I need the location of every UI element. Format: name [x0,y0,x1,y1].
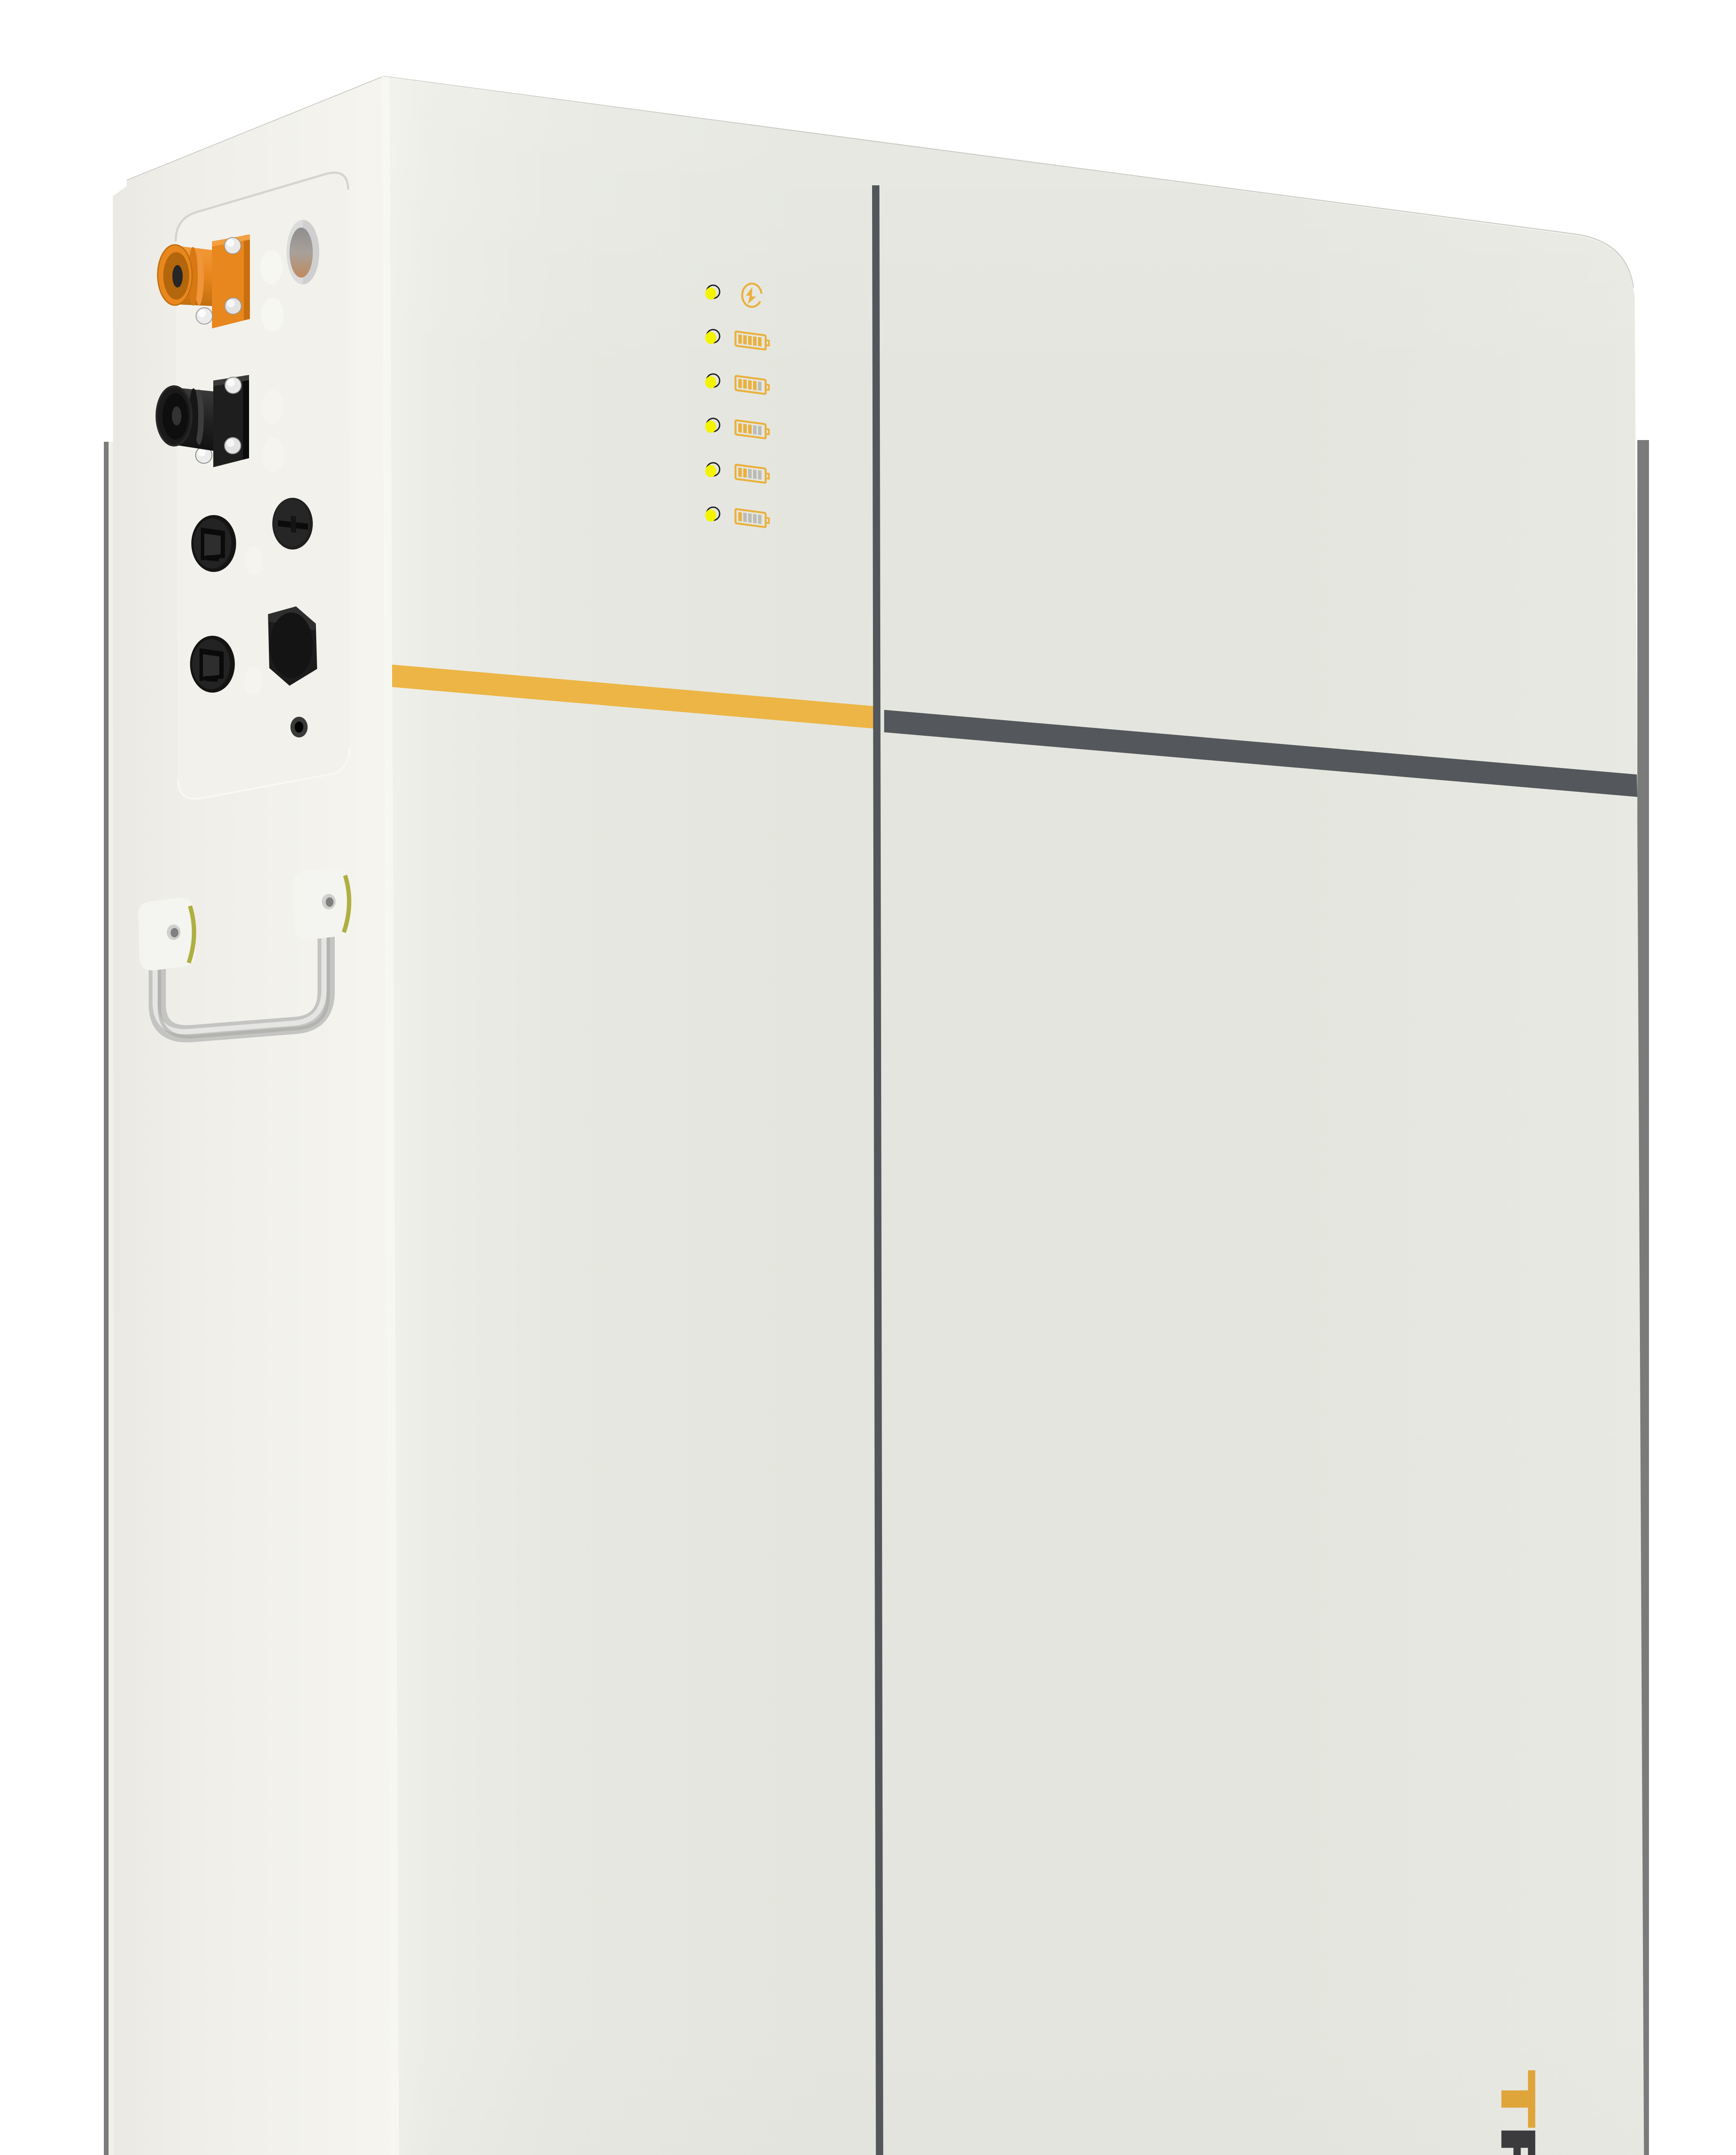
svg-text:TRIPLE: TRIPLE [1493,2071,1544,2155]
